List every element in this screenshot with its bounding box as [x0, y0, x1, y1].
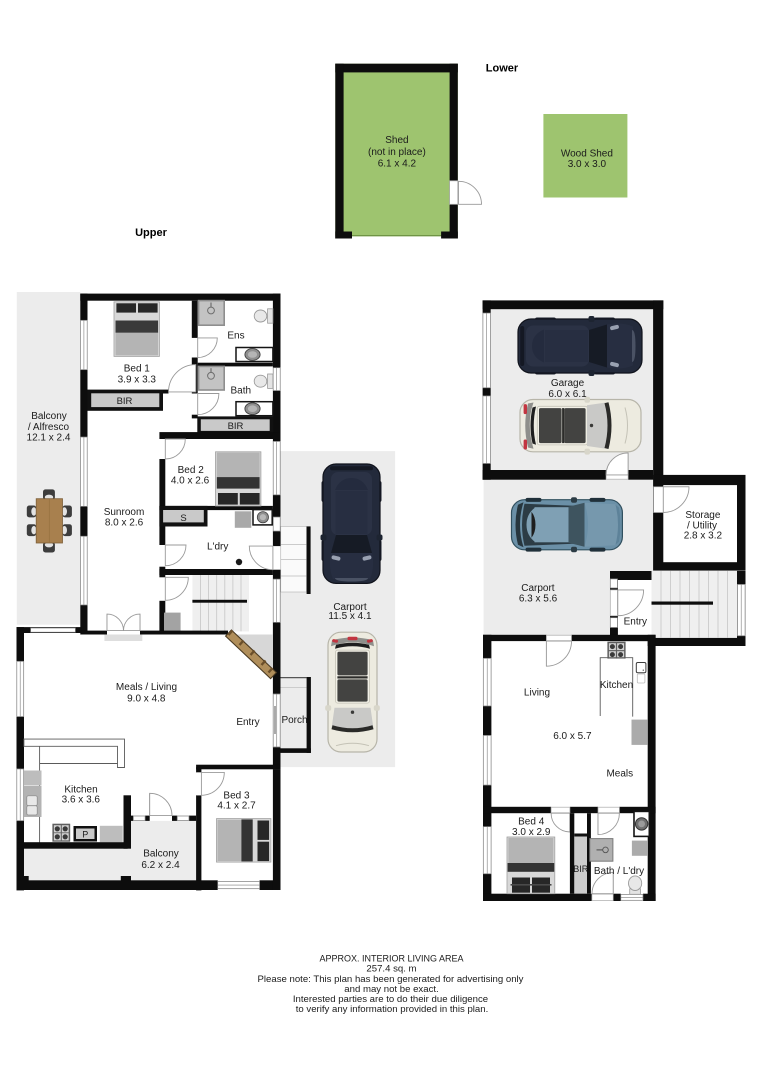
svg-text:Shed: Shed [385, 135, 408, 146]
svg-text:6.0 x 6.1: 6.0 x 6.1 [548, 389, 587, 400]
svg-text:2.8 x 3.2: 2.8 x 3.2 [684, 531, 723, 542]
svg-text:Lower: Lower [486, 63, 519, 75]
svg-text:Porch: Porch [281, 715, 307, 726]
svg-text:Meals / Living: Meals / Living [116, 682, 177, 693]
svg-text:11.5 x 4.1: 11.5 x 4.1 [328, 611, 372, 622]
svg-text:BIR: BIR [228, 421, 244, 432]
svg-text:to verify any information prov: to verify any information provided in th… [296, 1004, 489, 1015]
svg-text:BIR: BIR [573, 864, 589, 874]
svg-text:Entry: Entry [236, 717, 259, 728]
svg-text:6.3 x 5.6: 6.3 x 5.6 [519, 593, 558, 604]
svg-text:4.0 x 2.6: 4.0 x 2.6 [171, 476, 210, 487]
svg-text:3.6 x 3.6: 3.6 x 3.6 [62, 794, 101, 805]
svg-text:3.0 x 2.9: 3.0 x 2.9 [512, 827, 551, 838]
svg-text:S: S [180, 513, 186, 524]
svg-text:12.1 x 2.4: 12.1 x 2.4 [27, 433, 71, 444]
svg-text:APPROX. INTERIOR LIVING AREA: APPROX. INTERIOR LIVING AREA [319, 953, 463, 963]
svg-text:Wood Shed: Wood Shed [561, 149, 613, 160]
svg-text:9.0 x 4.8: 9.0 x 4.8 [127, 694, 166, 705]
svg-text:Meals: Meals [606, 769, 633, 780]
svg-text:Ens: Ens [227, 331, 244, 342]
svg-text:Entry: Entry [624, 617, 647, 628]
svg-text:Living: Living [524, 688, 550, 699]
svg-text:P: P [82, 830, 88, 840]
svg-text:4.1 x 2.7: 4.1 x 2.7 [217, 801, 256, 812]
svg-text:L'dry: L'dry [207, 542, 228, 553]
svg-text:Balcony: Balcony [143, 849, 179, 860]
svg-text:6.2 x 2.4: 6.2 x 2.4 [141, 860, 180, 871]
svg-text:(not in place): (not in place) [368, 147, 426, 158]
svg-text:6.1 x 4.2: 6.1 x 4.2 [378, 158, 417, 169]
svg-text:3.0 x 3.0: 3.0 x 3.0 [568, 159, 607, 170]
svg-text:Balcony: Balcony [31, 411, 67, 422]
svg-text:/ Alfresco: / Alfresco [28, 422, 70, 433]
svg-text:Bath / L'dry: Bath / L'dry [594, 866, 644, 877]
svg-text:BIR: BIR [117, 396, 133, 407]
svg-text:Bed 1: Bed 1 [124, 363, 151, 374]
svg-text:3.9 x 3.3: 3.9 x 3.3 [118, 374, 157, 385]
svg-text:Carport: Carport [521, 583, 555, 594]
svg-text:6.0 x 5.7: 6.0 x 5.7 [553, 731, 592, 742]
svg-text:Kitchen: Kitchen [600, 680, 633, 691]
svg-text:8.0 x 2.6: 8.0 x 2.6 [105, 517, 144, 528]
svg-text:Bed 4: Bed 4 [518, 817, 545, 828]
svg-text:Upper: Upper [135, 227, 168, 239]
svg-text:Bath: Bath [231, 386, 252, 397]
svg-text:Garage: Garage [551, 378, 585, 389]
